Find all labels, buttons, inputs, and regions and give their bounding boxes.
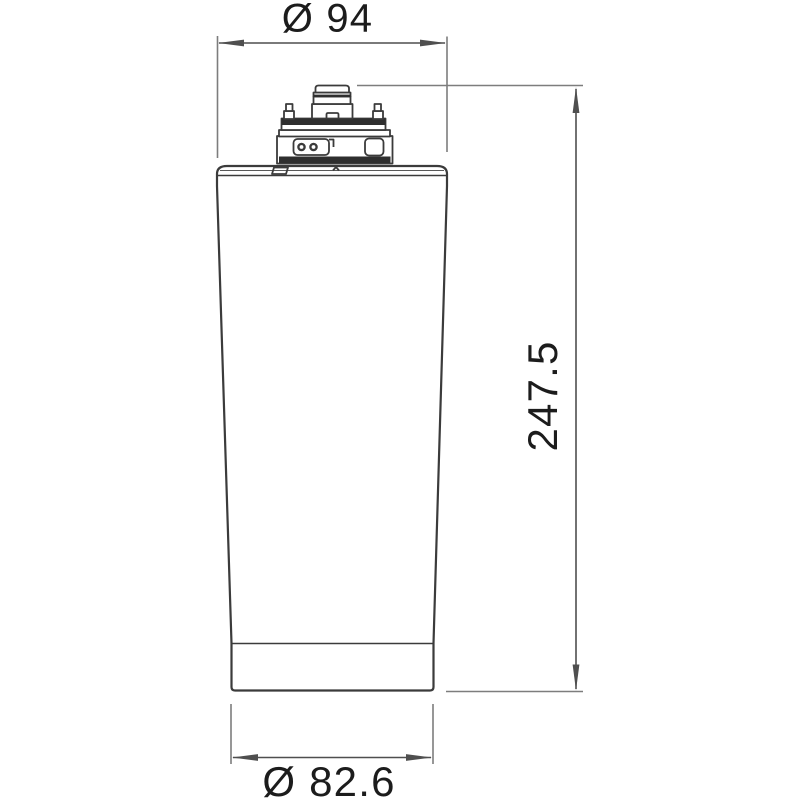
head-lug-left-top bbox=[286, 104, 293, 111]
head-flange-dark-band bbox=[282, 119, 386, 126]
dimension-bottom-diameter: Ø 82.6 bbox=[231, 704, 433, 800]
head-collar bbox=[279, 130, 390, 137]
head-cap-top bbox=[316, 86, 350, 93]
cartridge-head bbox=[277, 86, 393, 164]
cartridge-body-outline bbox=[217, 166, 447, 691]
dimension-label-top-diameter: Ø 94 bbox=[282, 0, 374, 41]
head-pin-right bbox=[310, 144, 316, 150]
head-lug-left-base bbox=[284, 111, 294, 119]
head-lug-right-top bbox=[375, 104, 382, 111]
arrowhead-down bbox=[573, 665, 580, 691]
arrowhead-left bbox=[232, 754, 258, 761]
arrowhead-up bbox=[573, 87, 580, 113]
dimension-label-bottom-diameter: Ø 82.6 bbox=[262, 758, 395, 800]
technical-drawing-canvas: Ø 94 247.5 Ø 82.6 bbox=[0, 0, 800, 800]
head-cap-seam bbox=[314, 95, 351, 98]
arrowhead-right bbox=[420, 40, 446, 47]
head-right-slot bbox=[365, 139, 384, 156]
head-stem bbox=[312, 104, 353, 119]
arrowhead-right bbox=[406, 754, 432, 761]
dimension-label-height: 247.5 bbox=[519, 340, 566, 451]
filter-cartridge-drawing: Ø 94 247.5 Ø 82.6 bbox=[0, 0, 800, 800]
head-base-dark-band bbox=[279, 157, 391, 164]
head-pin-left bbox=[298, 144, 304, 150]
cartridge-body bbox=[217, 166, 447, 691]
head-lug-right-base bbox=[373, 111, 383, 119]
head-cap-lower bbox=[314, 97, 351, 105]
arrowhead-left bbox=[218, 40, 244, 47]
